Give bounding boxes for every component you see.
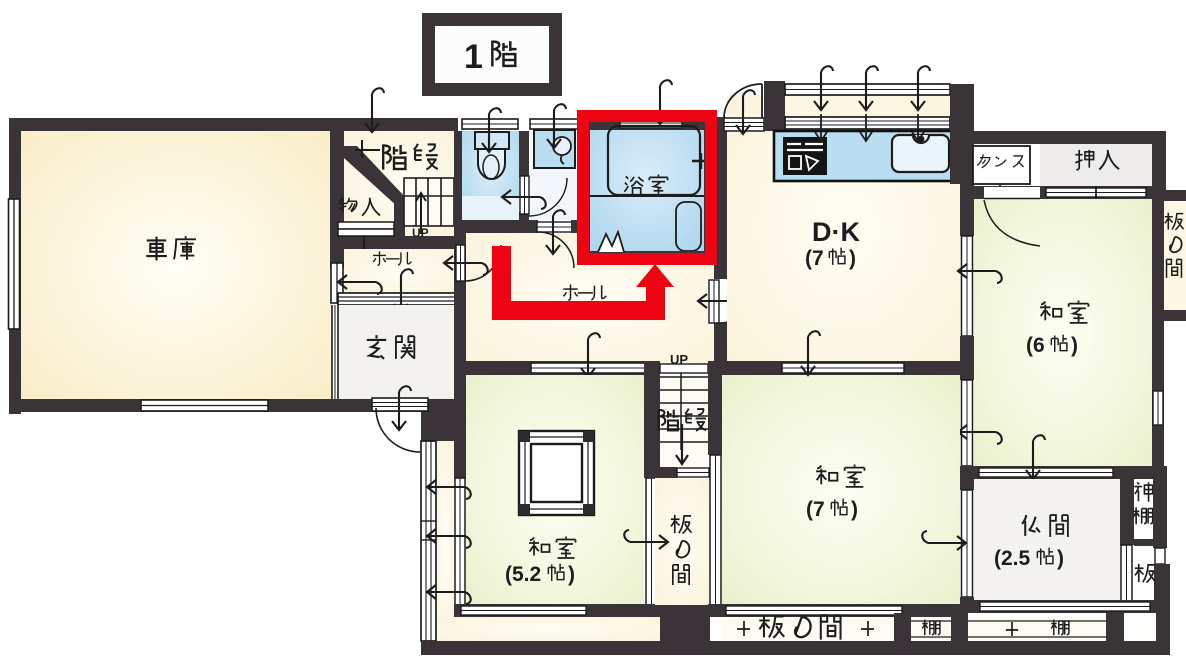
svg-text:): ) [1071, 334, 1078, 357]
svg-text:): ) [851, 498, 858, 521]
svg-text:(2.5: (2.5 [994, 547, 1031, 570]
svg-text:(5.2: (5.2 [505, 563, 541, 586]
svg-text:D·K: D·K [812, 217, 860, 247]
svg-text:(6: (6 [1026, 334, 1045, 357]
svg-text:1: 1 [464, 38, 483, 76]
svg-text:): ) [568, 563, 575, 586]
svg-text:): ) [1057, 547, 1064, 570]
svg-text:): ) [849, 247, 856, 270]
svg-text:(7: (7 [805, 247, 824, 270]
svg-text:UP: UP [412, 226, 429, 240]
svg-text:(7: (7 [806, 498, 825, 521]
